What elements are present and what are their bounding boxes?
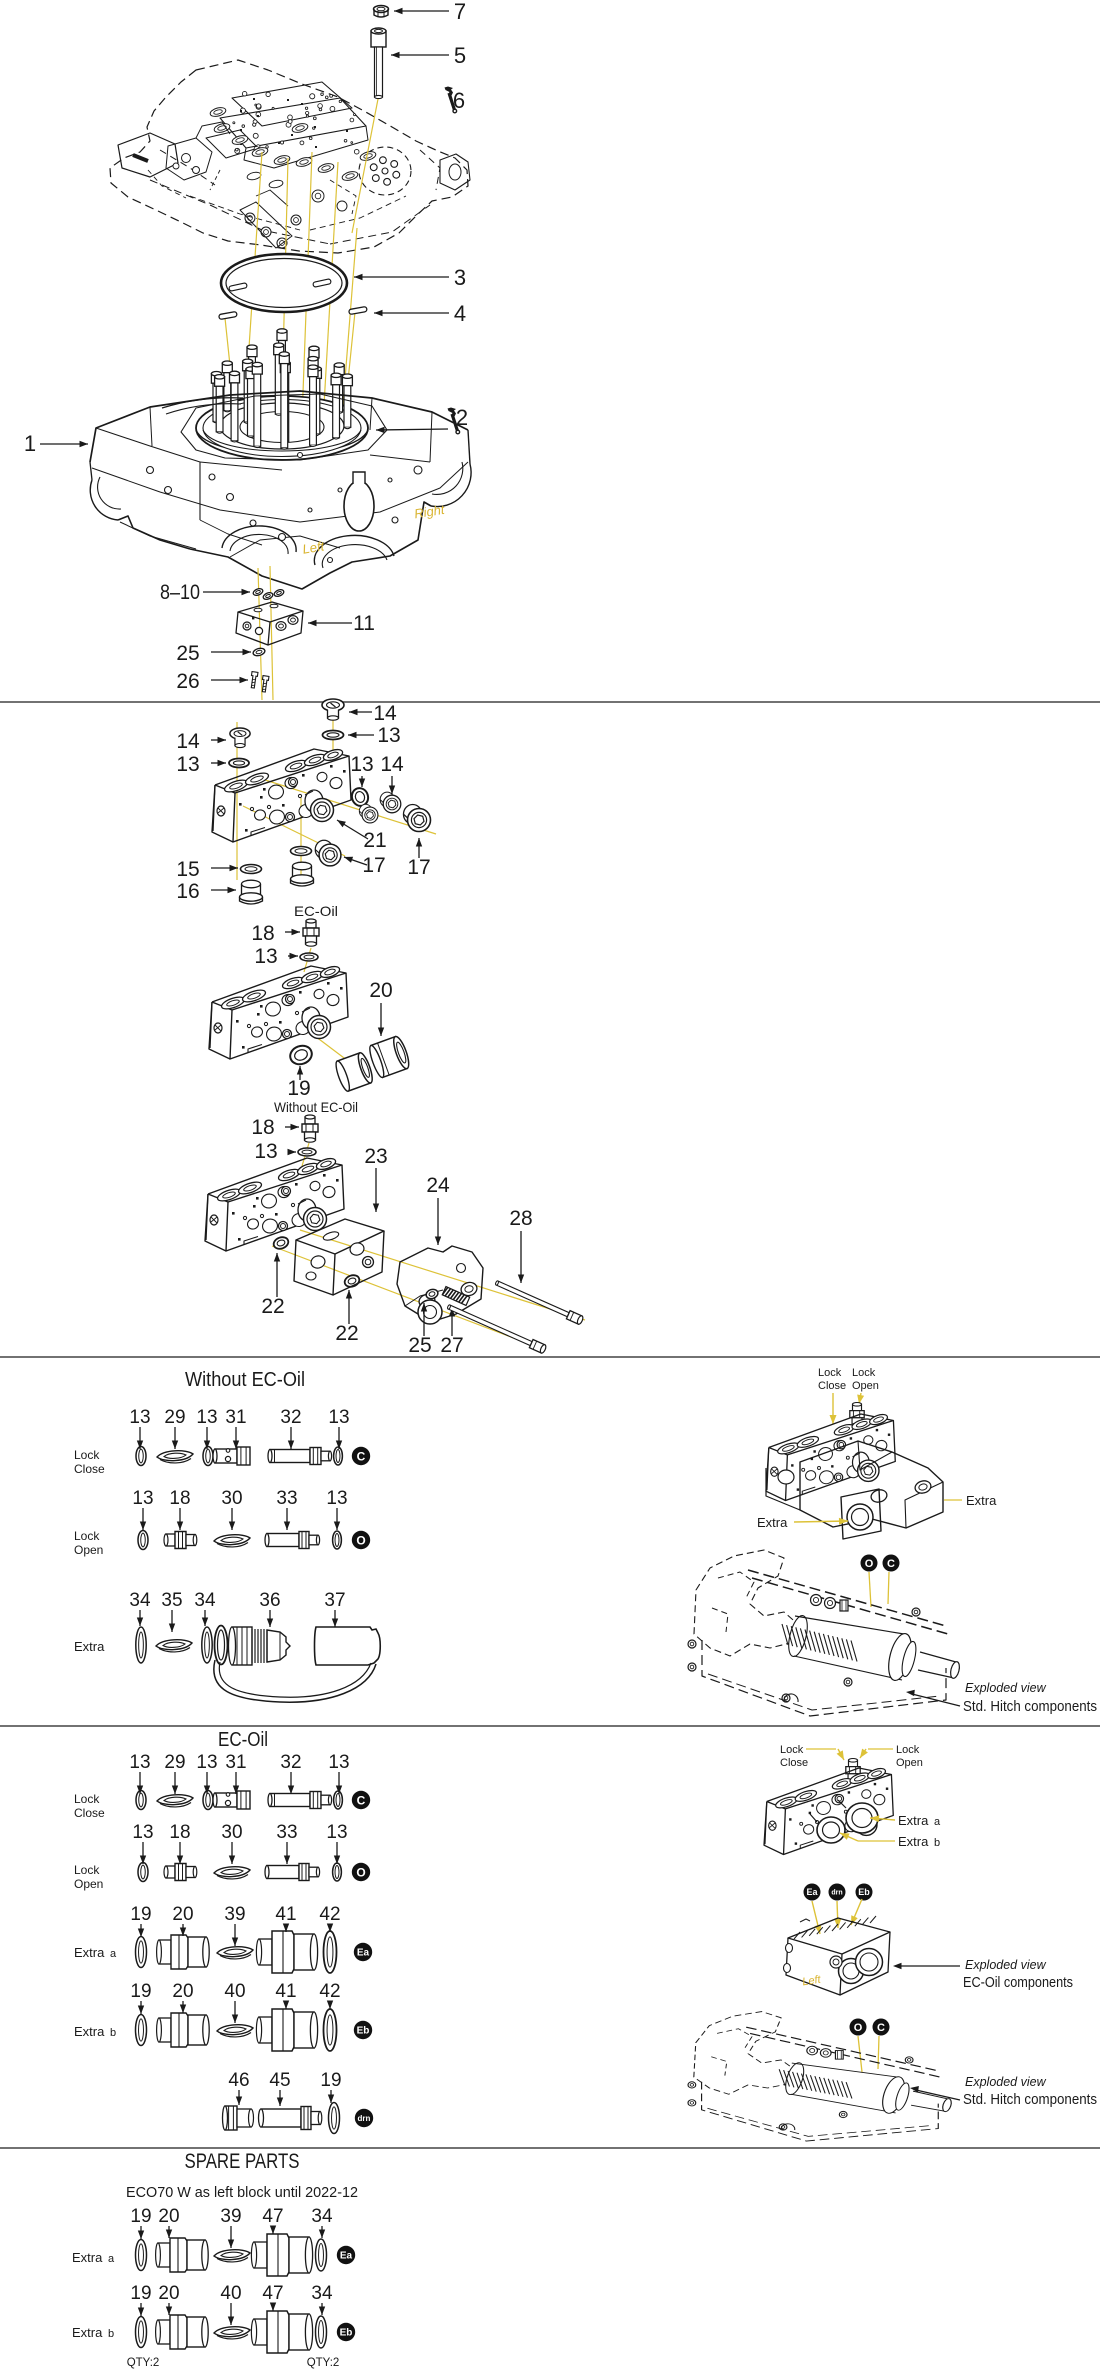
svg-text:Without EC-Oil: Without EC-Oil (185, 1369, 305, 1391)
svg-text:O: O (356, 1533, 365, 1547)
svg-text:34: 34 (311, 2206, 333, 2227)
svg-text:13: 13 (196, 1752, 217, 1773)
svg-text:34: 34 (194, 1590, 216, 1611)
svg-text:23: 23 (364, 1145, 387, 1168)
svg-text:ECO70 W as left block until 20: ECO70 W as left block until 2022-12 (126, 2184, 358, 2201)
svg-text:4: 4 (454, 301, 466, 326)
svg-text:Ea: Ea (357, 1948, 370, 1959)
svg-text:a: a (934, 1816, 941, 1828)
svg-text:29: 29 (164, 1407, 185, 1428)
svg-text:EC-Oil: EC-Oil (218, 1729, 268, 1751)
svg-text:C: C (357, 1449, 366, 1463)
svg-text:drn: drn (831, 1890, 842, 1897)
svg-text:30: 30 (221, 1488, 242, 1509)
svg-text:Close: Close (818, 1380, 846, 1392)
svg-text:26: 26 (176, 670, 199, 693)
svg-text:32: 32 (280, 1407, 301, 1428)
svg-text:a: a (108, 2253, 115, 2265)
svg-text:20: 20 (369, 979, 392, 1002)
svg-text:EC-Oil: EC-Oil (294, 903, 338, 919)
svg-text:42: 42 (319, 1981, 340, 2002)
svg-text:31: 31 (225, 1407, 246, 1428)
svg-text:15: 15 (176, 858, 199, 881)
svg-text:Extra: Extra (72, 2325, 103, 2340)
svg-text:Exploded view: Exploded view (965, 2075, 1047, 2089)
svg-text:QTY:2: QTY:2 (127, 2357, 160, 2369)
svg-text:37: 37 (324, 1590, 345, 1611)
svg-text:C: C (357, 1793, 366, 1807)
svg-text:46: 46 (228, 2070, 249, 2091)
svg-text:O: O (854, 2022, 863, 2034)
svg-text:8–10: 8–10 (160, 581, 200, 604)
svg-text:34: 34 (311, 2283, 333, 2304)
svg-text:18: 18 (169, 1488, 190, 1509)
svg-text:24: 24 (426, 1174, 450, 1197)
svg-text:1: 1 (24, 431, 36, 456)
svg-text:Open: Open (74, 1877, 103, 1891)
svg-text:36: 36 (259, 1590, 280, 1611)
svg-text:40: 40 (224, 1981, 245, 2002)
svg-text:27: 27 (440, 1334, 463, 1357)
svg-text:11: 11 (353, 612, 375, 635)
svg-text:Lock: Lock (896, 1744, 920, 1756)
svg-text:Open: Open (852, 1380, 879, 1392)
svg-text:17: 17 (362, 854, 385, 877)
svg-text:19: 19 (130, 2206, 151, 2227)
svg-text:b: b (110, 2027, 116, 2039)
svg-text:19: 19 (130, 1981, 151, 2002)
svg-text:13: 13 (129, 1752, 150, 1773)
svg-text:Lock: Lock (74, 1792, 100, 1806)
svg-text:13: 13 (377, 724, 400, 747)
svg-text:33: 33 (276, 1822, 297, 1843)
svg-text:Close: Close (780, 1757, 808, 1769)
svg-text:18: 18 (169, 1822, 190, 1843)
svg-text:21: 21 (363, 829, 386, 852)
svg-text:34: 34 (129, 1590, 151, 1611)
svg-text:35: 35 (161, 1590, 182, 1611)
svg-text:22: 22 (335, 1322, 358, 1345)
svg-text:25: 25 (408, 1334, 431, 1357)
svg-text:14: 14 (176, 730, 200, 753)
svg-text:b: b (108, 2328, 114, 2340)
svg-text:13: 13 (196, 1407, 217, 1428)
svg-text:41: 41 (275, 1981, 296, 2002)
svg-text:Lock: Lock (74, 1863, 100, 1877)
svg-text:Close: Close (74, 1462, 105, 1476)
svg-text:b: b (934, 1837, 940, 1849)
svg-text:20: 20 (158, 2206, 179, 2227)
svg-text:Extra: Extra (898, 1834, 929, 1849)
svg-text:SPARE PARTS: SPARE PARTS (185, 2150, 300, 2173)
svg-text:Close: Close (74, 1806, 105, 1820)
svg-text:Eb: Eb (340, 2328, 353, 2339)
svg-text:C: C (887, 1558, 895, 1570)
svg-text:Extra: Extra (72, 2250, 103, 2265)
svg-text:47: 47 (262, 2206, 283, 2227)
svg-text:2: 2 (456, 405, 468, 430)
svg-text:13: 13 (326, 1822, 347, 1843)
svg-text:19: 19 (130, 1904, 151, 1925)
svg-text:41: 41 (275, 1904, 296, 1925)
svg-text:17: 17 (407, 856, 430, 879)
svg-text:14: 14 (380, 753, 404, 776)
svg-text:20: 20 (172, 1904, 193, 1925)
svg-text:Lock: Lock (818, 1367, 842, 1379)
svg-text:33: 33 (276, 1488, 297, 1509)
svg-text:Lock: Lock (74, 1448, 100, 1462)
svg-text:Open: Open (896, 1757, 923, 1769)
svg-text:Extra: Extra (757, 1515, 788, 1530)
svg-text:6: 6 (453, 88, 465, 113)
svg-text:Ea: Ea (340, 2251, 353, 2262)
svg-text:O: O (865, 1558, 874, 1570)
svg-text:20: 20 (158, 2283, 179, 2304)
svg-text:42: 42 (319, 1904, 340, 1925)
svg-text:Extra: Extra (74, 2024, 105, 2039)
svg-text:13: 13 (132, 1822, 153, 1843)
svg-text:Without EC-Oil: Without EC-Oil (274, 1099, 358, 1115)
svg-text:Extra: Extra (74, 1639, 105, 1654)
svg-text:13: 13 (176, 753, 199, 776)
svg-text:C: C (877, 2022, 885, 2034)
svg-text:39: 39 (224, 1904, 245, 1925)
svg-text:Lock: Lock (852, 1367, 876, 1379)
svg-text:30: 30 (221, 1822, 242, 1843)
svg-text:25: 25 (176, 642, 199, 665)
svg-text:Lock: Lock (74, 1529, 100, 1543)
svg-text:EC-Oil components: EC-Oil components (963, 1974, 1073, 1991)
svg-text:19: 19 (287, 1077, 310, 1100)
svg-text:22: 22 (261, 1295, 284, 1318)
svg-text:13: 13 (254, 945, 277, 968)
svg-text:Exploded view: Exploded view (965, 1958, 1047, 1972)
svg-text:Extra: Extra (74, 1945, 105, 1960)
svg-text:16: 16 (176, 880, 199, 903)
svg-text:Open: Open (74, 1543, 103, 1557)
svg-text:Std. Hitch components: Std. Hitch components (963, 2091, 1097, 2108)
svg-text:QTY:2: QTY:2 (307, 2357, 340, 2369)
svg-text:29: 29 (164, 1752, 185, 1773)
svg-text:13: 13 (326, 1488, 347, 1509)
svg-text:28: 28 (509, 1207, 532, 1230)
svg-text:18: 18 (251, 1116, 274, 1139)
svg-text:O: O (356, 1865, 365, 1879)
svg-text:Lock: Lock (780, 1744, 804, 1756)
svg-text:Ea: Ea (806, 1887, 818, 1897)
svg-text:14: 14 (373, 702, 397, 725)
svg-text:Eb: Eb (858, 1887, 870, 1897)
svg-text:Extra: Extra (898, 1813, 929, 1828)
svg-text:Extra: Extra (966, 1493, 997, 1508)
svg-text:47: 47 (262, 2283, 283, 2304)
svg-text:13: 13 (350, 753, 373, 776)
svg-text:drn: drn (358, 2114, 371, 2123)
svg-text:Eb: Eb (357, 2026, 370, 2037)
svg-text:31: 31 (225, 1752, 246, 1773)
svg-text:40: 40 (220, 2283, 241, 2304)
svg-text:13: 13 (254, 1140, 277, 1163)
svg-text:18: 18 (251, 922, 274, 945)
svg-text:32: 32 (280, 1752, 301, 1773)
svg-text:7: 7 (454, 0, 466, 24)
svg-text:13: 13 (328, 1407, 349, 1428)
svg-text:a: a (110, 1948, 117, 1960)
svg-text:13: 13 (129, 1407, 150, 1428)
svg-text:45: 45 (269, 2070, 290, 2091)
svg-text:13: 13 (132, 1488, 153, 1509)
svg-text:19: 19 (130, 2283, 151, 2304)
svg-text:3: 3 (454, 265, 466, 290)
svg-text:13: 13 (328, 1752, 349, 1773)
svg-text:5: 5 (454, 43, 466, 68)
svg-text:39: 39 (220, 2206, 241, 2227)
svg-text:Exploded view: Exploded view (965, 1681, 1047, 1695)
svg-text:19: 19 (320, 2070, 341, 2091)
svg-text:20: 20 (172, 1981, 193, 2002)
svg-text:Std. Hitch components: Std. Hitch components (963, 1698, 1097, 1715)
